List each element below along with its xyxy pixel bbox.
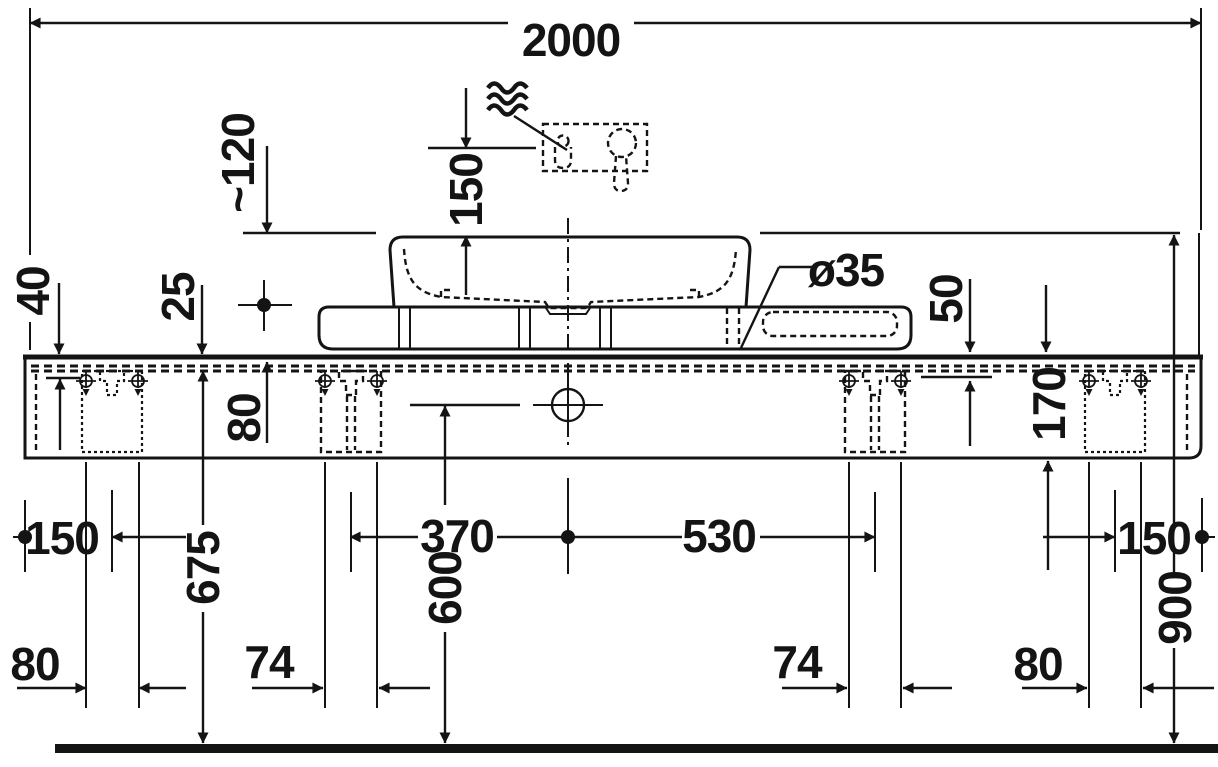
- dim-panel-thickness: 40: [7, 266, 59, 315]
- hot-water-wavy-icon: [488, 84, 527, 115]
- dim-floor-to-drain: 600: [419, 551, 471, 625]
- centerline-marker-dot: [238, 280, 292, 331]
- screw-icon: [76, 371, 96, 396]
- dim-spout-height: 150: [440, 153, 492, 227]
- screw-icon: [839, 371, 859, 396]
- dim-screw-pitch-inner-right: 74: [772, 636, 823, 688]
- spout-body: [555, 147, 571, 168]
- wavy-leader-line: [514, 116, 567, 150]
- console-shelf: [319, 307, 911, 349]
- technical-drawing-page: 2000 ø35 150 370 530 150 80 74 74 80 ~12…: [0, 0, 1218, 767]
- basin-inner-contour: [404, 249, 736, 308]
- shelf-recess-dashed: [763, 312, 897, 336]
- mixer-handle: [608, 129, 636, 157]
- dim-console-height: 170: [1023, 367, 1075, 441]
- dim-screw-pitch-outer-right: 80: [1013, 638, 1062, 690]
- floor-line: [55, 744, 1218, 753]
- screw-icon: [891, 371, 911, 396]
- dim-frame-inner: 80: [218, 393, 270, 442]
- basin-inner-step-left: [441, 290, 452, 297]
- dim-right-end-to-bracket: 150: [1117, 512, 1191, 564]
- dim-overall-width: 2000: [522, 14, 620, 66]
- washbasin: [390, 237, 750, 308]
- screw-icon: [1131, 371, 1151, 396]
- dim-screw-pitch-inner-left: 74: [244, 636, 295, 688]
- screw-icon: [367, 371, 387, 396]
- dim-left-end-to-bracket: 150: [25, 512, 99, 564]
- drain-hole-icon: [533, 377, 603, 433]
- mounting-screw-icons: [76, 371, 1151, 396]
- dim-spout-to-rim: ~120: [212, 113, 264, 213]
- dim-tap-hole: ø35: [808, 244, 885, 296]
- screw-icon: [1079, 371, 1099, 396]
- mixer-lever: [614, 156, 628, 191]
- dim-center-to-right-bracket: 530: [682, 510, 756, 562]
- wall-mixer-icon: [543, 124, 647, 191]
- screw-icon: [315, 371, 335, 396]
- dim-floor-to-rim: 900: [1149, 571, 1201, 645]
- dim-rail-inset: 25: [152, 272, 204, 322]
- technical-drawing: 2000 ø35 150 370 530 150 80 74 74 80 ~12…: [0, 0, 1218, 767]
- dim-screw-pitch-outer-left: 80: [10, 638, 59, 690]
- dim-edge-profile: 50: [920, 274, 972, 323]
- screw-icon: [128, 371, 148, 396]
- dim-floor-to-frame: 675: [177, 531, 229, 605]
- dimension-labels: 2000 ø35 150 370 530 150 80 74 74 80 ~12…: [7, 14, 1201, 690]
